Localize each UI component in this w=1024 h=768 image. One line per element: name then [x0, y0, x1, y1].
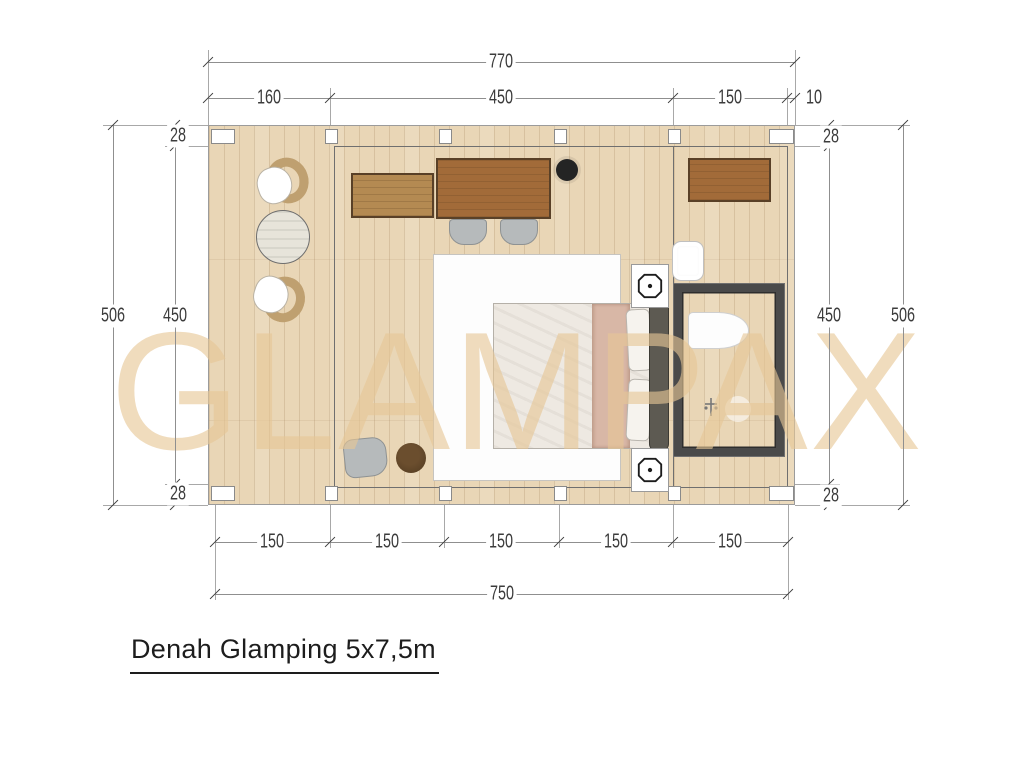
stove — [556, 159, 578, 181]
extension-line — [103, 505, 208, 506]
dim-label-right-wall-top: 28 — [820, 126, 842, 149]
post — [668, 486, 681, 501]
post — [211, 129, 235, 144]
credenza — [351, 173, 434, 218]
desk-chair-left — [449, 219, 487, 245]
dim-label-bottom-total: 750 — [487, 583, 517, 606]
glamping-floor-plan-sheet: GLAMPAX 770 160 — [0, 0, 1024, 768]
post — [769, 129, 794, 144]
dim-label-top-seg3: 10 — [803, 87, 825, 110]
plan-title: Denah Glamping 5x7,5m — [130, 634, 439, 674]
extension-line — [788, 505, 789, 600]
extension-line — [795, 505, 910, 506]
dim-label-top-seg2: 150 — [715, 87, 745, 110]
dim-label-left-outer: 506 — [98, 305, 128, 328]
extension-line — [215, 505, 216, 600]
lamp-icon — [636, 272, 664, 300]
dim-label-top-total: 770 — [486, 51, 516, 74]
post — [439, 129, 452, 144]
terrace-chair-top — [251, 152, 315, 214]
post — [439, 486, 452, 501]
dim-label-bottom-seg2: 150 — [486, 531, 516, 554]
dim-label-bottom-seg0: 150 — [257, 531, 287, 554]
dim-label-top-seg0: 160 — [254, 87, 284, 110]
watermark: GLAMPAX — [110, 300, 924, 483]
extension-line — [330, 88, 331, 125]
post — [325, 129, 338, 144]
dim-label-bottom-seg1: 150 — [372, 531, 402, 554]
desk-chair-right — [500, 219, 538, 245]
wardrobe — [688, 158, 771, 202]
post — [554, 129, 567, 144]
round-table — [256, 210, 310, 264]
post — [211, 486, 235, 501]
extension-line — [795, 125, 910, 126]
extension-line — [673, 88, 674, 125]
dim-label-right-wall-bottom: 28 — [820, 485, 842, 508]
dim-label-right-outer: 506 — [888, 305, 918, 328]
extension-line — [103, 125, 208, 126]
sink — [672, 241, 704, 281]
dim-label-right-inner: 450 — [814, 305, 844, 328]
post — [769, 486, 794, 501]
desk — [436, 158, 551, 219]
dim-label-bottom-seg3: 150 — [601, 531, 631, 554]
post — [554, 486, 567, 501]
dim-label-left-wall-bottom: 28 — [167, 483, 189, 506]
dim-label-left-wall-top: 28 — [167, 125, 189, 148]
dim-label-left-inner: 450 — [160, 305, 190, 328]
extension-line — [787, 88, 788, 125]
dim-label-bottom-seg4: 150 — [715, 531, 745, 554]
post — [668, 129, 681, 144]
dim-label-top-seg1: 450 — [486, 87, 516, 110]
post — [325, 486, 338, 501]
